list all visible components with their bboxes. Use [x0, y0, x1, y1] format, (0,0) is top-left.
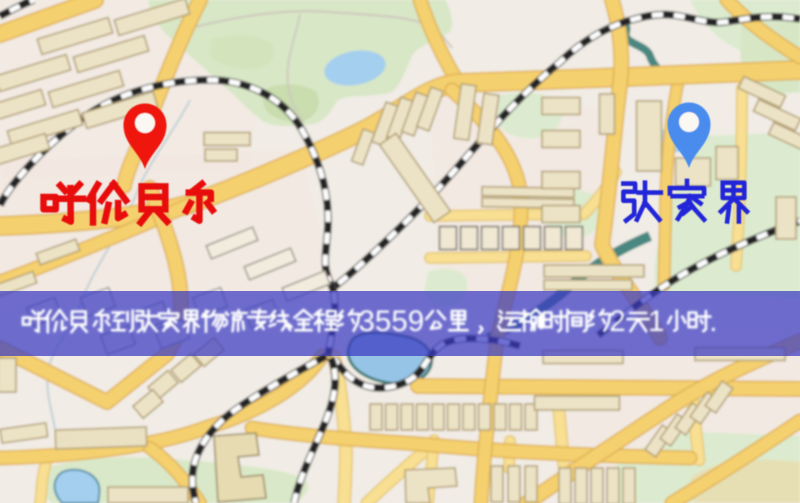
svg-text:1: 1 [648, 305, 664, 338]
svg-text:3559: 3559 [359, 305, 425, 338]
svg-text:.: . [709, 305, 717, 338]
svg-text:2: 2 [609, 305, 625, 338]
